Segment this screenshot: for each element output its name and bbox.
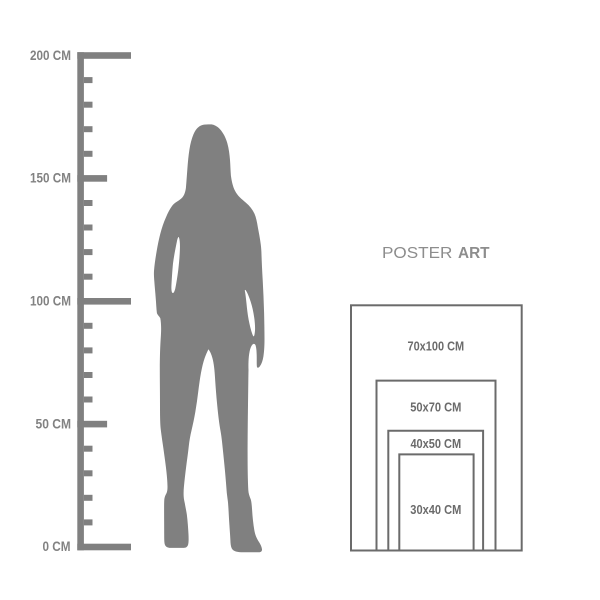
svg-text:50 CM: 50 CM	[36, 416, 72, 431]
svg-text:100 CM: 100 CM	[30, 294, 71, 309]
svg-text:30x40 CM: 30x40 CM	[410, 502, 461, 517]
svg-text:50x70 CM: 50x70 CM	[410, 399, 461, 414]
svg-text:0 CM: 0 CM	[43, 539, 71, 554]
svg-text:POSTER: POSTER	[382, 245, 452, 262]
svg-text:40x50 CM: 40x50 CM	[410, 436, 461, 451]
svg-text:ART: ART	[458, 245, 490, 262]
svg-text:70x100 CM: 70x100 CM	[408, 339, 465, 354]
svg-text:150 CM: 150 CM	[30, 171, 71, 186]
svg-text:200 CM: 200 CM	[30, 48, 71, 63]
